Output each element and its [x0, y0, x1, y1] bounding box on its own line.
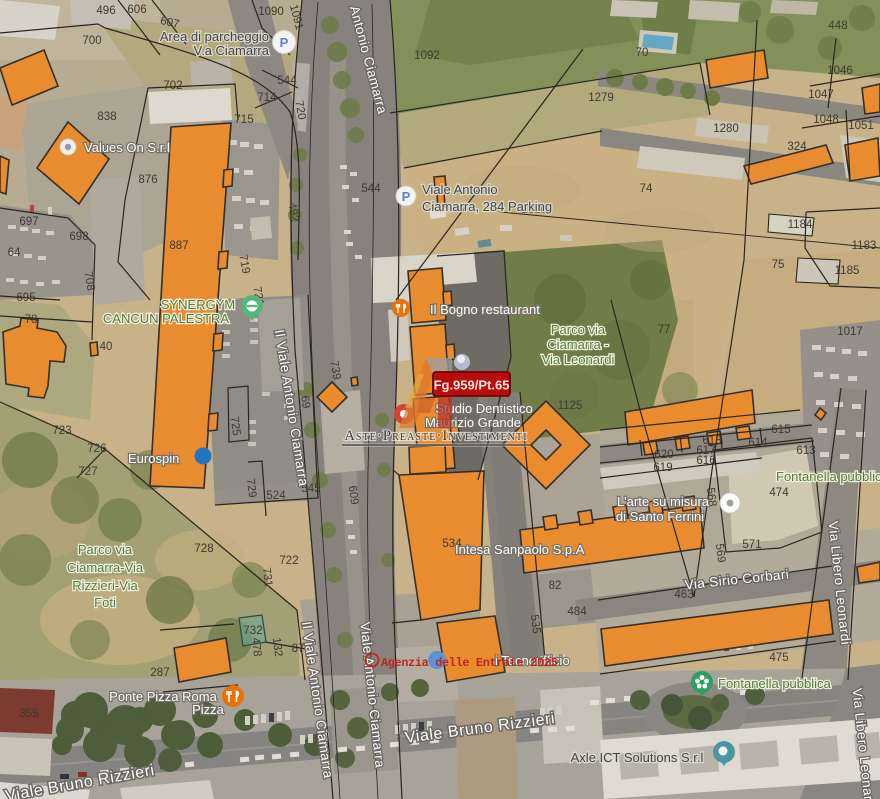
svg-text:569: 569	[713, 543, 727, 564]
svg-text:1183: 1183	[852, 240, 877, 252]
svg-text:731: 731	[260, 567, 274, 588]
svg-text:727: 727	[78, 466, 97, 478]
svg-text:614: 614	[748, 437, 768, 449]
svg-text:535: 535	[528, 614, 542, 635]
svg-text:728: 728	[194, 543, 213, 555]
svg-text:Il Bogno restaurant: Il Bogno restaurant	[430, 302, 540, 317]
svg-text:448: 448	[828, 20, 847, 32]
svg-text:P: P	[280, 35, 289, 50]
svg-text:726: 726	[87, 443, 106, 455]
svg-text:700: 700	[82, 35, 101, 47]
svg-text:Parco via: Parco via	[551, 322, 606, 337]
svg-text:CANCUN PALESTRA: CANCUN PALESTRA	[103, 311, 230, 326]
svg-text:544: 544	[361, 183, 381, 195]
svg-text:732: 732	[243, 625, 262, 637]
svg-text:40: 40	[100, 341, 113, 353]
svg-text:Eurospin: Eurospin	[128, 451, 179, 466]
svg-text:698: 698	[69, 231, 88, 243]
svg-text:615: 615	[771, 424, 790, 436]
svg-text:619: 619	[653, 462, 672, 474]
svg-text:496: 496	[96, 5, 115, 17]
svg-text:725: 725	[228, 416, 242, 437]
svg-text:70: 70	[636, 47, 649, 59]
svg-text:77: 77	[658, 324, 671, 336]
svg-text:887: 887	[169, 240, 188, 252]
svg-text:606: 606	[127, 4, 146, 16]
svg-text:702: 702	[163, 80, 182, 92]
svg-text:69: 69	[298, 395, 312, 410]
svg-text:di Santo Ferrini: di Santo Ferrini	[616, 509, 704, 524]
svg-text:SYNERGYM: SYNERGYM	[161, 297, 235, 312]
svg-text:609: 609	[346, 485, 360, 506]
svg-text:Pizza: Pizza	[192, 702, 225, 717]
svg-text:1046: 1046	[827, 65, 853, 77]
svg-text:1184: 1184	[788, 219, 813, 231]
svg-text:876: 876	[138, 174, 157, 186]
svg-text:571: 571	[742, 539, 761, 551]
svg-text:Parco via: Parco via	[78, 542, 133, 557]
svg-text:715: 715	[234, 114, 253, 126]
svg-text:714: 714	[257, 92, 277, 104]
svg-text:Foti: Foti	[94, 595, 116, 610]
svg-text:355: 355	[19, 708, 38, 720]
svg-text:Ciamarra-Via: Ciamarra-Via	[67, 560, 144, 575]
svg-text:838: 838	[97, 111, 116, 123]
svg-text:287: 287	[150, 667, 169, 679]
svg-text:Fontanella pubblica: Fontanella pubblica	[776, 469, 880, 484]
svg-text:132: 132	[270, 637, 284, 658]
svg-text:Fontanella pubblica: Fontanella pubblica	[718, 676, 832, 691]
svg-text:1280: 1280	[713, 123, 739, 135]
svg-text:78: 78	[25, 314, 38, 326]
svg-text:1279: 1279	[588, 92, 614, 104]
svg-text:Via Leonardi: Via Leonardi	[542, 352, 615, 367]
svg-text:474: 474	[769, 487, 789, 499]
svg-text:1047: 1047	[808, 89, 834, 101]
svg-text:722: 722	[279, 555, 298, 567]
svg-text:Axle ICT Solutions S.r.l: Axle ICT Solutions S.r.l	[571, 750, 704, 765]
svg-text:Ciamarra -: Ciamarra -	[547, 337, 608, 352]
svg-text:1092: 1092	[414, 50, 440, 62]
svg-text:L'arte su misura: L'arte su misura	[617, 494, 710, 509]
svg-text:723: 723	[52, 425, 71, 437]
svg-text:P: P	[402, 189, 411, 204]
svg-text:544: 544	[277, 75, 297, 87]
svg-text:Fg.959/Pt.65: Fg.959/Pt.65	[434, 378, 510, 393]
svg-text:324: 324	[787, 141, 807, 153]
svg-text:475: 475	[769, 652, 788, 664]
svg-text:697: 697	[19, 216, 38, 228]
svg-text:613: 613	[796, 445, 815, 457]
svg-text:Ciamarra, 284 Parking: Ciamarra, 284 Parking	[422, 199, 552, 214]
svg-text:1185: 1185	[835, 265, 860, 277]
svg-text:Aste·Preaste·Investimenti: Aste·Preaste·Investimenti	[344, 428, 527, 444]
svg-text:620: 620	[654, 449, 673, 461]
svg-text:1125: 1125	[558, 400, 583, 412]
svg-text:1017: 1017	[837, 326, 863, 338]
svg-text:1090: 1090	[258, 6, 284, 18]
svg-text:75: 75	[772, 259, 785, 271]
svg-text:Area di parcheggio: Area di parcheggio	[160, 29, 269, 44]
svg-text:74: 74	[640, 183, 653, 195]
svg-text:Intesa Sanpaolo S.p.A: Intesa Sanpaolo S.p.A	[455, 542, 585, 557]
svg-text:1051: 1051	[848, 120, 874, 132]
svg-text:695: 695	[16, 292, 35, 304]
svg-text:Viale Antonio: Viale Antonio	[422, 182, 498, 197]
svg-text:1048: 1048	[813, 114, 839, 126]
svg-text:Agenzia delle Entrate 2025: Agenzia delle Entrate 2025	[381, 656, 557, 670]
svg-text:64: 64	[8, 247, 21, 259]
svg-text:729: 729	[244, 478, 258, 499]
svg-text:82: 82	[549, 580, 562, 592]
svg-text:Values On S.r.l: Values On S.r.l	[84, 140, 170, 155]
svg-text:484: 484	[567, 606, 587, 618]
svg-text:616: 616	[696, 455, 715, 467]
svg-text:524: 524	[266, 490, 286, 502]
svg-text:Rizzieri-Via: Rizzieri-Via	[72, 578, 138, 593]
svg-text:478: 478	[249, 637, 263, 658]
svg-text:V.a Ciamarra: V.a Ciamarra	[194, 43, 270, 58]
